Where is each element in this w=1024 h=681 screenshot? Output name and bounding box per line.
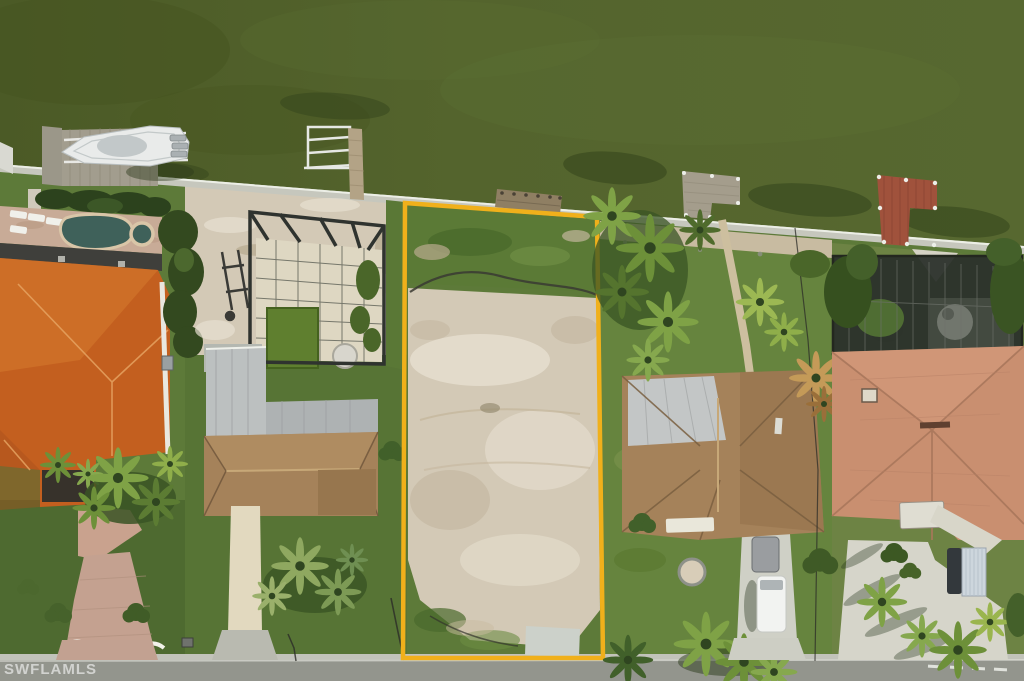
right-driveway-apron <box>728 638 806 660</box>
dark-vehicle <box>947 548 962 594</box>
front-gable <box>318 469 376 515</box>
rock-waterfall <box>937 304 973 340</box>
boat-outboard-engines <box>170 135 188 157</box>
roof-vent <box>774 418 782 434</box>
ac-unit <box>162 356 173 370</box>
right-house-roof <box>622 370 824 540</box>
salmon-roof-house <box>832 346 1024 540</box>
spa <box>131 223 153 245</box>
watermark-swflamls: SWFLAMLS <box>4 661 97 678</box>
fire-pit <box>679 559 705 585</box>
rear-porch <box>666 517 714 533</box>
vacant-lot <box>391 189 603 660</box>
cage-pool <box>267 308 318 368</box>
middle-driveway <box>228 506 262 632</box>
gray-vehicle <box>752 537 779 572</box>
boat-console-cover <box>97 135 147 157</box>
aerial-photo: SWFLAMLS <box>0 0 1024 681</box>
ridge-vent <box>920 421 950 428</box>
finger-dock <box>348 128 364 200</box>
carport <box>947 548 986 596</box>
left-driveway-apron <box>56 640 158 660</box>
aerial-photo-canvas <box>0 0 1024 681</box>
utility-box <box>182 638 193 647</box>
skylight <box>862 389 877 402</box>
white-van <box>744 576 786 632</box>
lot-old-driveway-pad <box>525 626 580 657</box>
metal-roof-section <box>628 376 726 446</box>
middle-driveway-apron <box>212 630 278 660</box>
